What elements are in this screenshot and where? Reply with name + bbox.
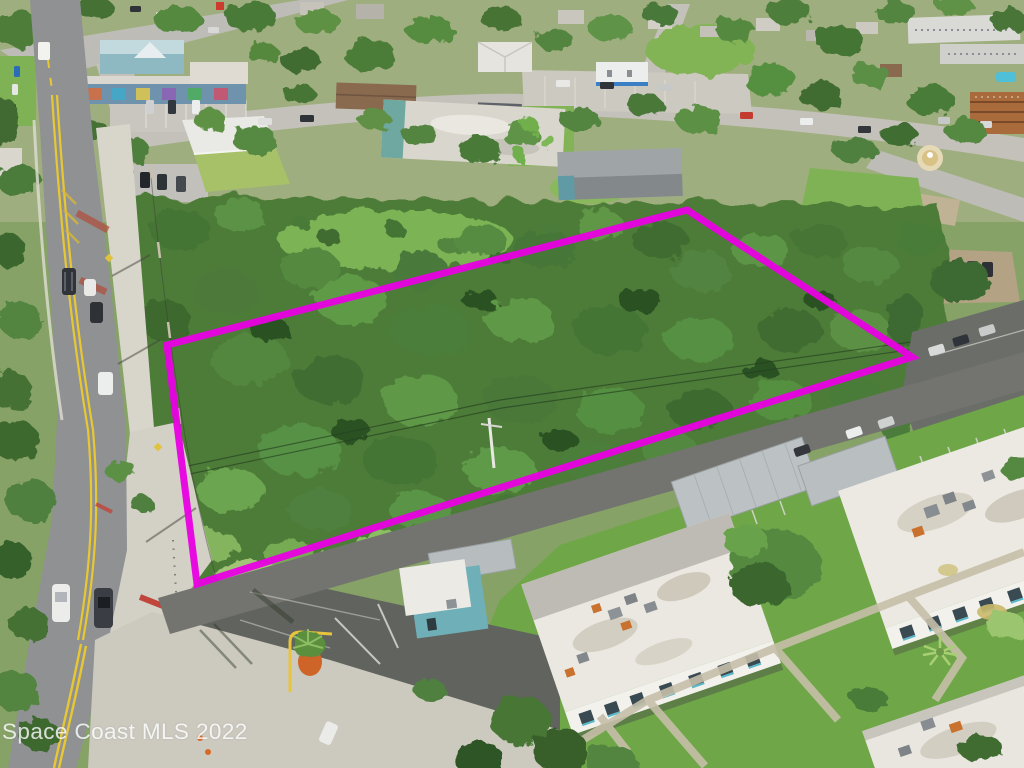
- hip-roof-office: [478, 42, 532, 72]
- white-strip-building: [190, 62, 248, 84]
- listing-photo: Space Coast MLS 2022: [0, 0, 1024, 768]
- aerial-photo-scene: [0, 0, 1024, 768]
- teal-gable-building: [100, 40, 184, 74]
- mls-watermark: Space Coast MLS 2022: [2, 719, 248, 745]
- gray-hip-house: [557, 148, 683, 200]
- dome-kiosk: [917, 145, 943, 171]
